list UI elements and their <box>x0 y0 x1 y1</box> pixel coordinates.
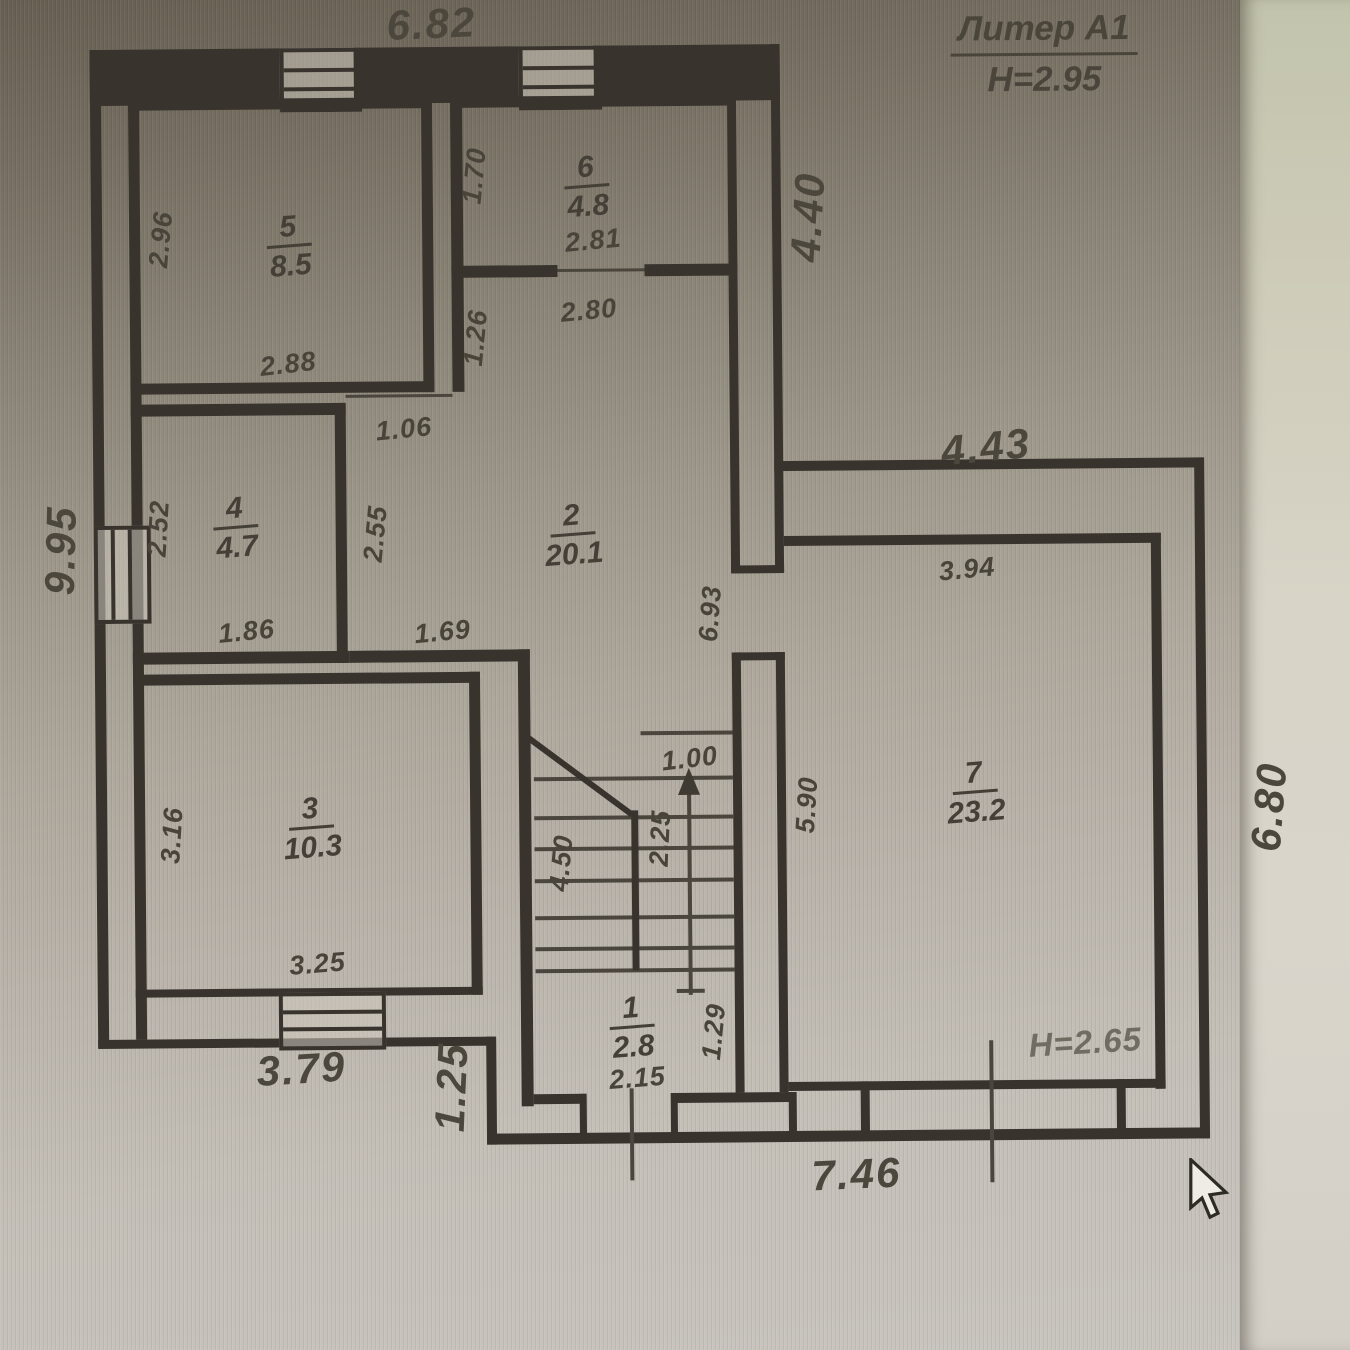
wall <box>469 672 483 995</box>
dim-outer-top: 6.82 <box>385 0 477 50</box>
wall <box>486 1037 497 1145</box>
dim-room5-width: 2.88 <box>258 346 318 383</box>
wall <box>350 649 530 663</box>
room-label-7: 7 23.2 <box>943 755 1007 829</box>
dim-stair-width: 2.25 <box>644 809 677 867</box>
dimension-tick <box>630 1088 635 1180</box>
room-area: 4.7 <box>214 530 261 565</box>
dim-outer-left: 9.95 <box>36 505 86 596</box>
room-area: 4.8 <box>565 188 612 223</box>
room-label-4: 4 4.7 <box>211 491 261 564</box>
dim-corridor-height: 2.55 <box>358 504 394 563</box>
wall <box>861 1081 871 1139</box>
wall <box>354 46 519 103</box>
dim-room2-top-width: 2.80 <box>559 293 618 329</box>
liter-title: Литер А1 <box>950 8 1138 57</box>
title-block: Литер А1 Н=2.95 <box>936 8 1152 101</box>
dim-corridor-door: 1.06 <box>374 411 433 447</box>
wall <box>732 652 745 1092</box>
room-number: 5 <box>264 210 311 249</box>
dim-room5-height: 2.96 <box>143 210 179 269</box>
dim-room6-width: 2.81 <box>564 223 623 259</box>
dim-room6-height: 1.70 <box>456 146 492 205</box>
wall <box>90 48 280 106</box>
stair-divider <box>631 810 639 970</box>
door-opening <box>557 268 644 272</box>
room-label-5: 5 8.5 <box>264 210 314 283</box>
door-jamb <box>731 565 784 573</box>
dim-room4-width: 1.86 <box>217 614 276 650</box>
room-number: 1 <box>607 991 654 1030</box>
wall <box>128 97 432 111</box>
room7-ceiling-height: H=2.65 <box>1027 1020 1142 1065</box>
room-label-1: 1 2.8 <box>607 991 657 1064</box>
room-number: 7 <box>950 756 997 795</box>
wall <box>594 44 780 102</box>
wall <box>450 94 736 107</box>
dim-room7-top-width: 3.94 <box>937 551 996 587</box>
wall <box>789 1079 1166 1091</box>
room-label-6: 6 4.8 <box>562 150 612 223</box>
dim-ext-top: 4.43 <box>939 419 1033 475</box>
wall <box>770 44 784 572</box>
wall <box>1194 457 1210 1138</box>
dimension-tick <box>989 1040 994 1182</box>
ceiling-height: Н=2.95 <box>937 59 1152 101</box>
wall <box>1117 1079 1127 1137</box>
wall <box>335 403 348 663</box>
dim-room3-height: 3.16 <box>155 806 189 864</box>
room-number: 2 <box>548 498 595 537</box>
room-label-3: 3 10.3 <box>279 791 343 865</box>
wall <box>784 533 1161 546</box>
room-area: 20.1 <box>544 536 605 572</box>
wall <box>131 403 346 417</box>
wall <box>451 265 557 278</box>
dim-ext-right: 6.80 <box>1242 760 1297 853</box>
wall <box>518 649 534 1106</box>
dim-right-upper: 4.40 <box>781 171 834 264</box>
dim-stair-length: 4.50 <box>543 833 579 892</box>
wall <box>534 1094 586 1104</box>
arrow-tail-tick <box>677 989 705 993</box>
door-opening <box>346 394 453 398</box>
dim-room2-right-height: 6.93 <box>693 584 728 643</box>
wall <box>487 1127 1209 1144</box>
room-label-2: 2 20.1 <box>541 498 605 572</box>
wall <box>1151 533 1166 1089</box>
window-symbol <box>279 992 387 1051</box>
door-jamb <box>671 1093 678 1139</box>
wall <box>130 381 434 395</box>
dim-bottom: 7.46 <box>810 1149 902 1201</box>
room-area: 10.3 <box>282 829 343 865</box>
wall <box>133 672 480 686</box>
wall <box>133 651 350 665</box>
stair-direction-arrow <box>687 792 693 995</box>
dim-room1-width: 2.15 <box>608 1061 667 1096</box>
wall <box>674 1092 791 1103</box>
dim-hall-wall: 1.69 <box>413 614 472 650</box>
dim-bottom-left: 3.79 <box>255 1043 348 1096</box>
dim-room3-width: 3.25 <box>288 946 347 981</box>
door-jamb <box>580 1094 587 1140</box>
mouse-cursor <box>1186 1158 1234 1222</box>
dim-stair-top-run: 1.00 <box>660 740 720 777</box>
wall <box>776 652 789 1092</box>
dim-room2-left: 1.26 <box>458 308 494 367</box>
dim-step: 1.25 <box>426 1041 478 1133</box>
room-area: 2.8 <box>610 1029 657 1064</box>
wall <box>727 94 740 572</box>
room-number: 6 <box>562 150 609 189</box>
dim-room7-left-height: 5.90 <box>790 776 824 834</box>
floor-plan: 6.82 9.95 4.40 4.43 6.80 3.79 1.25 7.46 … <box>0 0 1350 1350</box>
room-area: 23.2 <box>946 794 1007 830</box>
stair-tread <box>640 731 732 736</box>
wall <box>644 263 737 276</box>
room-number: 3 <box>286 792 333 831</box>
wall <box>421 97 435 392</box>
stair-tread <box>534 775 733 781</box>
dim-room4-height: 2.52 <box>142 499 176 557</box>
dim-room1-right: 1.29 <box>696 1002 732 1061</box>
room-number: 4 <box>211 491 258 530</box>
room-area: 8.5 <box>267 248 314 283</box>
